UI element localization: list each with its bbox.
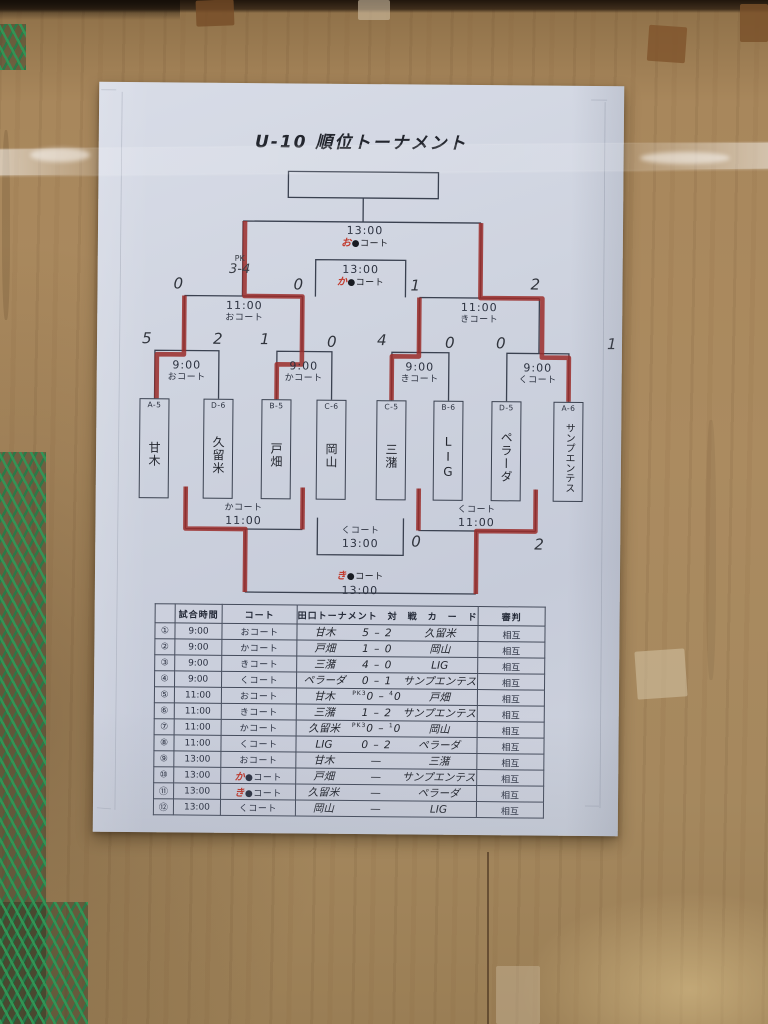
team-name: 甘木	[148, 412, 161, 496]
home-team: 戸畑	[297, 640, 352, 655]
header-court: コート	[222, 604, 297, 624]
seed-label: D-5	[492, 403, 520, 412]
consolation-left-label: かコート 11:00	[198, 503, 288, 529]
away-team: 岡山	[402, 641, 477, 657]
match4-time: 9:00	[493, 361, 583, 376]
match-card-line: ペラーダ0 – 1サンプエンテス	[297, 672, 477, 689]
cell-court: きコート	[222, 655, 297, 672]
third-place-time: 13:00	[316, 263, 406, 278]
cell-referee: 相互	[477, 754, 544, 771]
pk-home: PK3	[352, 690, 366, 697]
match3-court: きコート	[375, 374, 465, 386]
team-box: B-5戸畑	[261, 399, 292, 499]
consolation-right-court: くコート	[432, 505, 522, 517]
home-team: 三潴	[297, 704, 352, 719]
team-name: 三潴	[385, 414, 398, 498]
cell-referee: 相互	[477, 706, 544, 723]
cell-referee: 相互	[477, 770, 544, 787]
cell-match-number: ③	[155, 655, 175, 671]
beige-tape	[634, 648, 687, 699]
team-name: 久留米	[212, 413, 225, 497]
match-score: —	[351, 770, 401, 782]
team-name: ペラーダ	[500, 415, 513, 499]
semifinal-left-time: 11:00	[199, 299, 289, 314]
header-no	[155, 604, 175, 623]
cell-referee: 相互	[478, 626, 545, 643]
photo-of-poster-on-wood: U-10 順位トーナメント	[0, 0, 768, 1024]
cell-match-card: 三潴1 – 2サンプエンテス	[296, 704, 477, 722]
court-text: ●コート	[245, 789, 282, 799]
header-referee: 審判	[478, 607, 545, 627]
home-team: LIG	[296, 738, 351, 750]
team-box: D-5ペラーダ	[491, 401, 522, 501]
beige-tape	[496, 966, 540, 1024]
court-text: きコート	[240, 708, 278, 718]
team-box: A-5甘木	[139, 398, 170, 498]
match-card-line: 戸畑—サンプエンテス	[296, 768, 476, 785]
away-team: LIG	[402, 659, 477, 672]
cell-match-card: 久留米—ペラーダ	[296, 784, 477, 802]
seventh-place-time: 13:00	[315, 537, 405, 552]
score-qf2-right: 0	[327, 333, 337, 351]
match-score: —	[351, 802, 401, 814]
consolation-left-time: 11:00	[198, 514, 288, 529]
header-card: 田口トーナメント 対 戦 カ ー ド	[297, 605, 478, 626]
brown-tape	[196, 0, 235, 27]
match-score: PK30 – 10	[352, 722, 402, 735]
home-team: 甘木	[297, 688, 352, 703]
fifth-place-label: き●コート 13:00	[315, 571, 405, 598]
away-team: LIG	[401, 803, 476, 816]
cell-referee: 相互	[477, 722, 544, 739]
brown-tape	[647, 25, 687, 64]
consolation-left-court: かコート	[199, 503, 289, 515]
score-sf2-left: 1	[410, 276, 420, 294]
match-score: PK30 – 40	[352, 690, 402, 703]
team-box: D-6久留米	[203, 399, 234, 499]
seed-label: A-5	[140, 400, 168, 409]
cell-time: 13:00	[173, 799, 220, 815]
fifth-place-court-correction: き	[336, 571, 347, 582]
match-score: 0 – 2	[351, 738, 401, 750]
cell-court: おコート	[221, 751, 296, 768]
match-card-line: LIG0 – 2ペラーダ	[296, 736, 476, 753]
score-qf1-right: 2	[213, 330, 223, 348]
home-team: 甘木	[297, 624, 352, 639]
pk-shootout-note: PK 3-4	[220, 255, 260, 276]
away-team: サンプエンテス	[401, 769, 476, 785]
brown-tape	[740, 4, 768, 42]
pk-away: 4	[389, 691, 394, 698]
cell-match-number: ⑥	[154, 703, 174, 719]
third-place-label: 13:00 か●コート	[315, 263, 405, 290]
away-team: 三潴	[401, 753, 476, 769]
cell-court: かコート	[222, 639, 297, 656]
court-text: くコート	[239, 740, 277, 750]
green-net-corner	[0, 902, 88, 1024]
cell-match-card: 三潴4 – 0LIG	[297, 656, 478, 674]
final-time: 13:00	[320, 224, 410, 239]
cell-match-card: 岡山—LIG	[295, 800, 476, 818]
score-qf1-left: 5	[142, 329, 152, 347]
cell-match-number: ①	[155, 623, 175, 639]
score-qf3-right: 0	[445, 334, 455, 352]
match-score: 1 – 0	[352, 642, 402, 654]
cell-time: 9:00	[175, 639, 222, 655]
seed-label: C-6	[317, 402, 345, 411]
home-team: 甘木	[296, 752, 351, 767]
cell-time: 9:00	[175, 623, 222, 639]
match2-time: 9:00	[259, 359, 349, 374]
score-consolation-right-right: 2	[534, 536, 544, 554]
cell-match-number: ⑪	[154, 783, 174, 799]
away-team: ペラーダ	[401, 785, 476, 801]
tape-glint	[640, 152, 730, 164]
away-team: サンプエンテス	[402, 673, 477, 689]
cell-match-number: ⑤	[154, 687, 174, 703]
semifinal-right-court: きコート	[434, 314, 524, 326]
team-box: B-6LIG	[433, 401, 464, 501]
green-net-top	[0, 24, 26, 70]
pk-away: 1	[389, 723, 394, 730]
seed-label: B-6	[434, 403, 462, 412]
cell-time: 13:00	[174, 751, 221, 767]
wood-grain-streak	[706, 420, 716, 680]
seed-label: A-6	[554, 404, 582, 413]
cell-match-card: 戸畑—サンプエンテス	[296, 768, 477, 786]
away-team: 戸畑	[402, 689, 477, 705]
table-row: ⑫13:00くコート岡山—LIG相互	[153, 799, 543, 818]
seed-label: C-5	[377, 402, 405, 411]
score-sf1-left: 0	[173, 274, 183, 292]
away-team: ペラーダ	[401, 737, 476, 753]
cell-time: 13:00	[174, 783, 221, 799]
cell-referee: 相互	[477, 786, 544, 803]
match-card-line: 甘木5 – 2久留米	[297, 624, 477, 641]
match-score: 1 – 2	[352, 706, 402, 718]
cell-match-card: 甘木5 – 2久留米	[297, 624, 478, 642]
schedule-table: 試合時間 コート 田口トーナメント 対 戦 カ ー ド 審判 ①9:00おコート…	[153, 603, 546, 818]
match-score: —	[351, 754, 401, 766]
cell-match-card: 甘木—三潴	[296, 752, 477, 770]
match-card-line: 岡山—LIG	[296, 800, 476, 817]
third-place-court: か●コート	[315, 276, 405, 289]
home-team: ペラーダ	[297, 672, 352, 687]
cell-time: 11:00	[174, 719, 221, 735]
match-card-line: 甘木PK30 – 40戸畑	[297, 688, 477, 705]
match2-court: かコート	[259, 373, 349, 385]
tournament-poster: U-10 順位トーナメント	[93, 82, 625, 837]
final-court: お●コート	[320, 237, 410, 250]
cell-match-number: ④	[155, 671, 175, 687]
tape-glint	[30, 148, 90, 162]
cell-match-number: ⑩	[154, 767, 174, 783]
semifinal-right-label: 11:00 きコート	[434, 301, 524, 327]
cell-time: 13:00	[174, 767, 221, 783]
cell-court: くコート	[222, 671, 297, 688]
third-place-court-correction: か	[337, 277, 348, 288]
pk-home: PK3	[352, 722, 366, 729]
schedule-tbody: ①9:00おコート甘木5 – 2久留米相互②9:00かコート戸畑1 – 0岡山相…	[153, 623, 545, 818]
court-text: くコート	[239, 804, 277, 814]
cell-referee: 相互	[477, 690, 544, 707]
home-team: 久留米	[296, 784, 351, 799]
cell-time: 11:00	[174, 735, 221, 751]
consolation-right-time: 11:00	[431, 516, 521, 531]
score-qf4-left: 0	[496, 334, 506, 352]
seventh-place-court: くコート	[315, 526, 405, 538]
away-team: サンプエンテス	[402, 705, 477, 721]
cell-match-number: ⑨	[154, 751, 174, 767]
final-match-label: 13:00 お●コート	[320, 224, 410, 251]
light-tape	[358, 0, 390, 20]
match-card-line: 戸畑1 – 0岡山	[297, 640, 477, 657]
court-correction: か	[234, 772, 245, 783]
cell-court: おコート	[221, 687, 296, 704]
score-qf2-left: 1	[260, 330, 270, 348]
final-court-correction: お	[341, 238, 352, 249]
seed-label: D-6	[204, 401, 232, 410]
court-correction: き	[234, 788, 245, 799]
fifth-place-time: 13:00	[315, 583, 405, 598]
cell-court: き●コート	[221, 783, 296, 800]
match1-time: 9:00	[142, 358, 232, 373]
court-text: かコート	[240, 724, 278, 734]
cell-referee: 相互	[478, 674, 545, 691]
header-time: 試合時間	[175, 604, 222, 623]
team-box: A-6サンプエンテス	[553, 402, 584, 502]
cell-court: くコート	[221, 735, 296, 752]
team-name: 戸畑	[270, 413, 283, 497]
home-team: 三潴	[297, 656, 352, 671]
team-box: C-6岡山	[316, 400, 347, 500]
home-team: 戸畑	[296, 768, 351, 783]
cell-referee: 相互	[478, 642, 545, 659]
seed-label: B-5	[262, 401, 290, 410]
match-score: —	[351, 786, 401, 798]
fifth-place-court: き●コート	[315, 571, 405, 584]
match-card-line: 久留米PK30 – 10岡山	[297, 720, 477, 737]
home-team: 岡山	[296, 800, 351, 815]
match-card-line: 甘木—三潴	[296, 752, 476, 769]
cell-court: おコート	[222, 623, 297, 640]
away-team: 岡山	[402, 721, 477, 737]
match-card-line: 久留米—ペラーダ	[296, 784, 476, 801]
match1-court: おコート	[142, 372, 232, 384]
cell-match-card: ペラーダ0 – 1サンプエンテス	[296, 672, 477, 690]
semifinal-left-label: 11:00 おコート	[199, 299, 289, 325]
cell-court: くコート	[220, 799, 295, 816]
cell-time: 9:00	[175, 655, 222, 671]
match3-time: 9:00	[375, 360, 465, 375]
cell-court: か●コート	[221, 767, 296, 784]
match-card-line: 三潴1 – 2サンプエンテス	[297, 704, 477, 721]
cell-match-card: 甘木PK30 – 40戸畑	[296, 688, 477, 706]
cell-time: 9:00	[175, 671, 222, 687]
match-score: 4 – 0	[352, 658, 402, 670]
team-name: 岡山	[325, 414, 338, 498]
score-sf2-right: 2	[530, 275, 540, 293]
court-text: くコート	[240, 676, 278, 686]
team-box: C-5三潴	[376, 400, 407, 500]
cell-time: 11:00	[174, 703, 221, 719]
score-qf3-left: 4	[377, 331, 387, 349]
cell-match-card: 戸畑1 – 0岡山	[297, 640, 478, 658]
cell-match-card: 久留米PK30 – 10岡山	[296, 720, 477, 738]
cell-referee: 相互	[476, 802, 543, 819]
match-score: 0 – 1	[352, 674, 402, 686]
score-qf4-right: 1	[607, 335, 617, 353]
cell-court: かコート	[221, 719, 296, 736]
semifinal-left-court: おコート	[199, 312, 289, 324]
match-score: 5 – 2	[352, 626, 402, 638]
team-name: LIG	[442, 415, 455, 499]
score-consolation-right-left: 0	[411, 532, 421, 550]
court-text: おコート	[240, 628, 278, 638]
home-team: 久留米	[297, 720, 352, 735]
match4-label: 9:00 くコート	[493, 361, 583, 387]
match1-label: 9:00 おコート	[142, 358, 232, 384]
plank-seam	[487, 852, 489, 1024]
court-text: おコート	[240, 692, 278, 702]
score-sf1-right: 0	[293, 275, 303, 293]
court-text: おコート	[239, 756, 277, 766]
cell-referee: 相互	[477, 738, 544, 755]
court-text: ●コート	[245, 773, 282, 783]
court-text: かコート	[240, 644, 278, 654]
cell-match-number: ②	[155, 639, 175, 655]
seventh-place-label: くコート 13:00	[315, 526, 405, 552]
cell-match-number: ⑦	[154, 719, 174, 735]
cell-match-number: ⑧	[154, 735, 174, 751]
cell-match-card: LIG0 – 2ペラーダ	[296, 736, 477, 754]
match-card-line: 三潴4 – 0LIG	[297, 656, 477, 673]
court-text: きコート	[240, 660, 278, 670]
cell-referee: 相互	[478, 658, 545, 675]
cell-court: きコート	[221, 703, 296, 720]
match2-label: 9:00 かコート	[259, 359, 349, 385]
away-team: 久留米	[402, 625, 477, 641]
semifinal-right-time: 11:00	[434, 301, 524, 316]
cell-time: 11:00	[174, 687, 221, 703]
team-name: サンプエンテス	[563, 416, 574, 500]
wood-top-shadow	[0, 0, 180, 20]
match3-label: 9:00 きコート	[375, 360, 465, 386]
match4-court: くコート	[493, 375, 583, 387]
cell-match-number: ⑫	[153, 799, 173, 815]
consolation-right-label: くコート 11:00	[431, 505, 521, 531]
